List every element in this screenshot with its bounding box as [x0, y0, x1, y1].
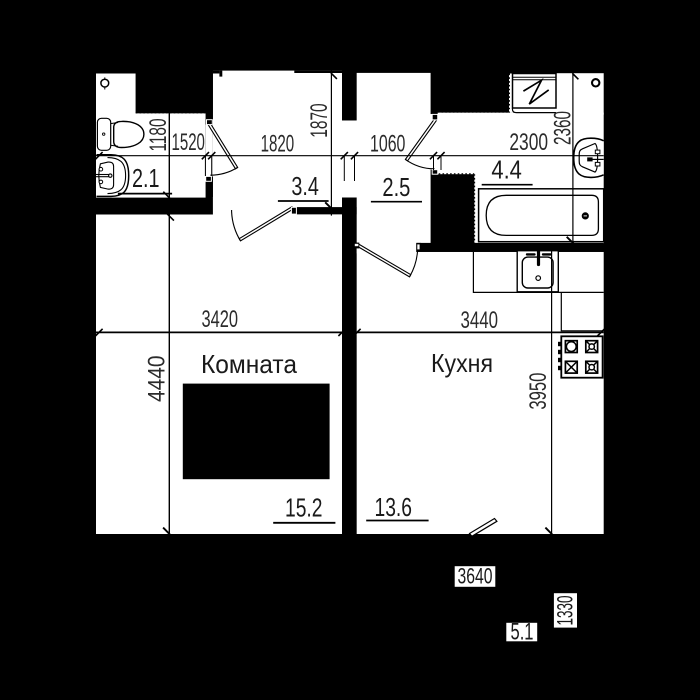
svg-text:2.1: 2.1 [132, 163, 160, 193]
svg-text:2.5: 2.5 [382, 172, 410, 202]
svg-text:1520: 1520 [172, 129, 205, 156]
svg-text:1060: 1060 [370, 130, 405, 157]
svg-text:2360: 2360 [549, 111, 576, 145]
svg-text:1820: 1820 [261, 130, 295, 157]
svg-text:3.4: 3.4 [291, 171, 319, 201]
svg-text:3420: 3420 [202, 306, 239, 333]
svg-text:Комната: Комната [201, 349, 298, 379]
svg-text:3440: 3440 [461, 307, 499, 334]
svg-text:4.4: 4.4 [491, 154, 522, 184]
svg-text:13.6: 13.6 [375, 494, 413, 522]
svg-text:3950: 3950 [525, 373, 552, 410]
svg-text:1870: 1870 [306, 103, 333, 137]
svg-text:4440: 4440 [143, 356, 170, 403]
svg-text:1180: 1180 [145, 119, 172, 152]
svg-text:15.2: 15.2 [285, 495, 323, 523]
svg-text:Кухня: Кухня [431, 348, 493, 378]
svg-text:1330: 1330 [553, 596, 578, 626]
svg-text:5.1: 5.1 [511, 619, 534, 646]
svg-text:2300: 2300 [509, 129, 548, 156]
svg-text:3640: 3640 [458, 564, 493, 589]
